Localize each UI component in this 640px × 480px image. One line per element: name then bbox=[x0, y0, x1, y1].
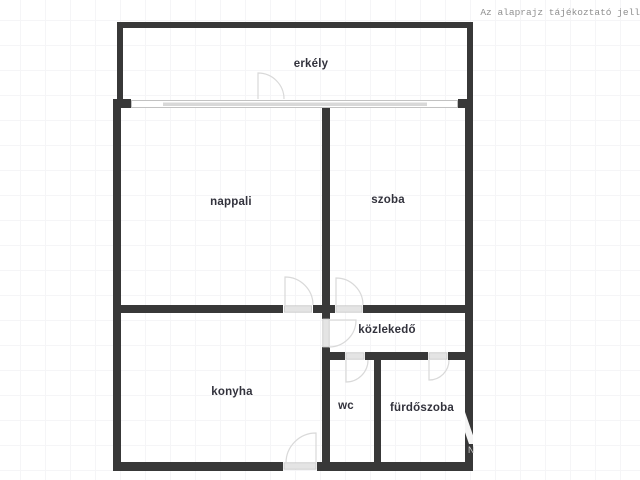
outer-wall-bottom-left bbox=[113, 462, 283, 471]
door-arc-konyha bbox=[329, 320, 356, 347]
door-leaf-nappali bbox=[285, 306, 312, 312]
wall-kozlekedo-seg3 bbox=[448, 352, 465, 360]
outer-wall-left bbox=[113, 99, 121, 471]
outer-walls bbox=[113, 99, 473, 471]
wall-middle-seg3 bbox=[363, 305, 465, 313]
door-arc-wc bbox=[346, 360, 368, 382]
wall-konyha-vert-seg1 bbox=[322, 313, 330, 319]
wall-middle-seg1 bbox=[121, 305, 283, 313]
door-arc-nappali bbox=[285, 277, 313, 305]
door-arc-szoba bbox=[336, 278, 363, 305]
balcony-wall-top bbox=[117, 22, 473, 28]
outer-wall-right bbox=[465, 99, 473, 471]
wall-nappali-szoba bbox=[322, 108, 330, 305]
door-leaf-furdoszoba bbox=[429, 353, 447, 359]
balcony-wall-left bbox=[117, 22, 123, 100]
floorplan-page: Az alaprajz tájékoztató jell bbox=[0, 0, 640, 480]
door-arc-furdoszoba bbox=[429, 360, 449, 380]
outer-wall-top-post-right bbox=[458, 99, 473, 108]
room-label-furdoszoba: fürdőszoba bbox=[390, 402, 454, 414]
room-labels: erkély nappali szoba közlekedő konyha wc… bbox=[210, 58, 454, 414]
floorplan-drawing: erkély nappali szoba közlekedő konyha wc… bbox=[0, 0, 640, 480]
window bbox=[132, 101, 458, 108]
door-leaf-szoba bbox=[336, 306, 362, 312]
door-leaf-entrance bbox=[284, 463, 316, 469]
wall-middle-seg2 bbox=[313, 305, 335, 313]
room-label-konyha: konyha bbox=[211, 386, 253, 398]
wall-kozlekedo-seg2 bbox=[365, 352, 428, 360]
door-leaf-konyha bbox=[323, 319, 329, 347]
window-glass bbox=[163, 103, 427, 107]
door-arc-entrance bbox=[286, 433, 316, 463]
room-label-kozlekedo: közlekedő bbox=[358, 324, 415, 336]
outer-wall-bottom-right bbox=[317, 462, 473, 471]
wall-kozlekedo-seg1 bbox=[330, 352, 345, 360]
room-label-wc: wc bbox=[337, 400, 354, 412]
wall-konyha-vert-seg2 bbox=[322, 347, 330, 462]
door-leaf-wc bbox=[346, 353, 364, 359]
balcony-wall-right bbox=[467, 22, 473, 100]
outer-wall-top-post-left bbox=[113, 99, 131, 108]
room-label-erkely: erkély bbox=[294, 58, 329, 70]
wall-wc-furdo bbox=[374, 360, 381, 462]
watermark-letter: N bbox=[468, 445, 475, 455]
room-label-szoba: szoba bbox=[371, 194, 405, 206]
room-label-nappali: nappali bbox=[210, 196, 252, 208]
door-balcony bbox=[258, 73, 284, 99]
